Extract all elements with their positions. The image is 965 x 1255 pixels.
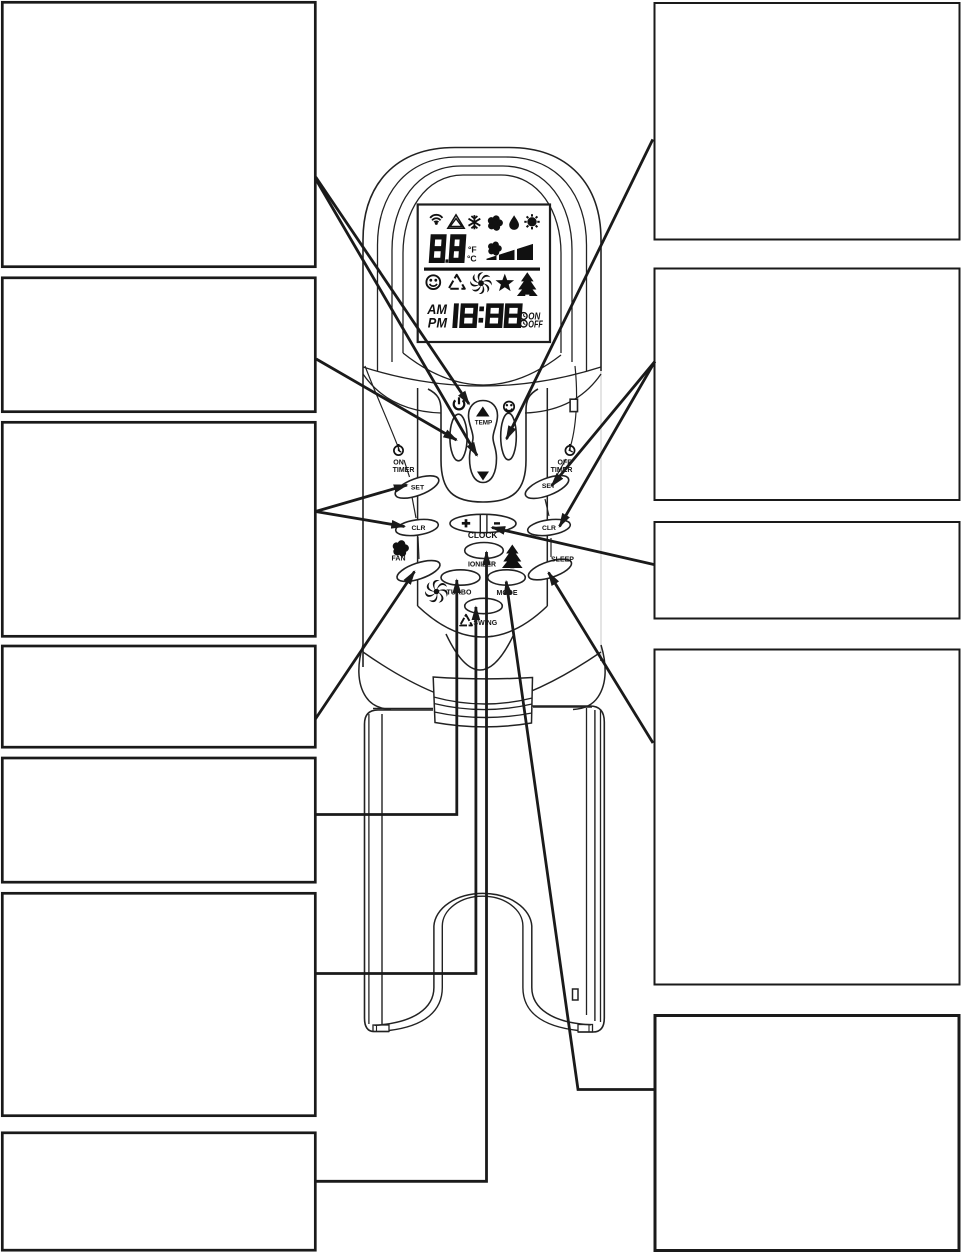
svg-text:OFF: OFF	[528, 319, 543, 330]
svg-text:TIMER: TIMER	[393, 467, 415, 474]
svg-text:FAN: FAN	[392, 555, 406, 562]
svg-text:CLOCK: CLOCK	[468, 530, 498, 540]
svg-text:CLR: CLR	[542, 525, 556, 532]
svg-text:IONIZER: IONIZER	[468, 561, 496, 568]
svg-text:SLEEP: SLEEP	[551, 556, 574, 563]
svg-text:PM: PM	[428, 314, 448, 330]
svg-text:CLR: CLR	[412, 525, 426, 532]
svg-text:ON: ON	[393, 460, 404, 467]
svg-text:TURBO: TURBO	[447, 589, 472, 596]
svg-text:TEMP: TEMP	[475, 419, 493, 426]
svg-text:SET: SET	[411, 485, 425, 492]
svg-text:°C: °C	[467, 254, 477, 264]
